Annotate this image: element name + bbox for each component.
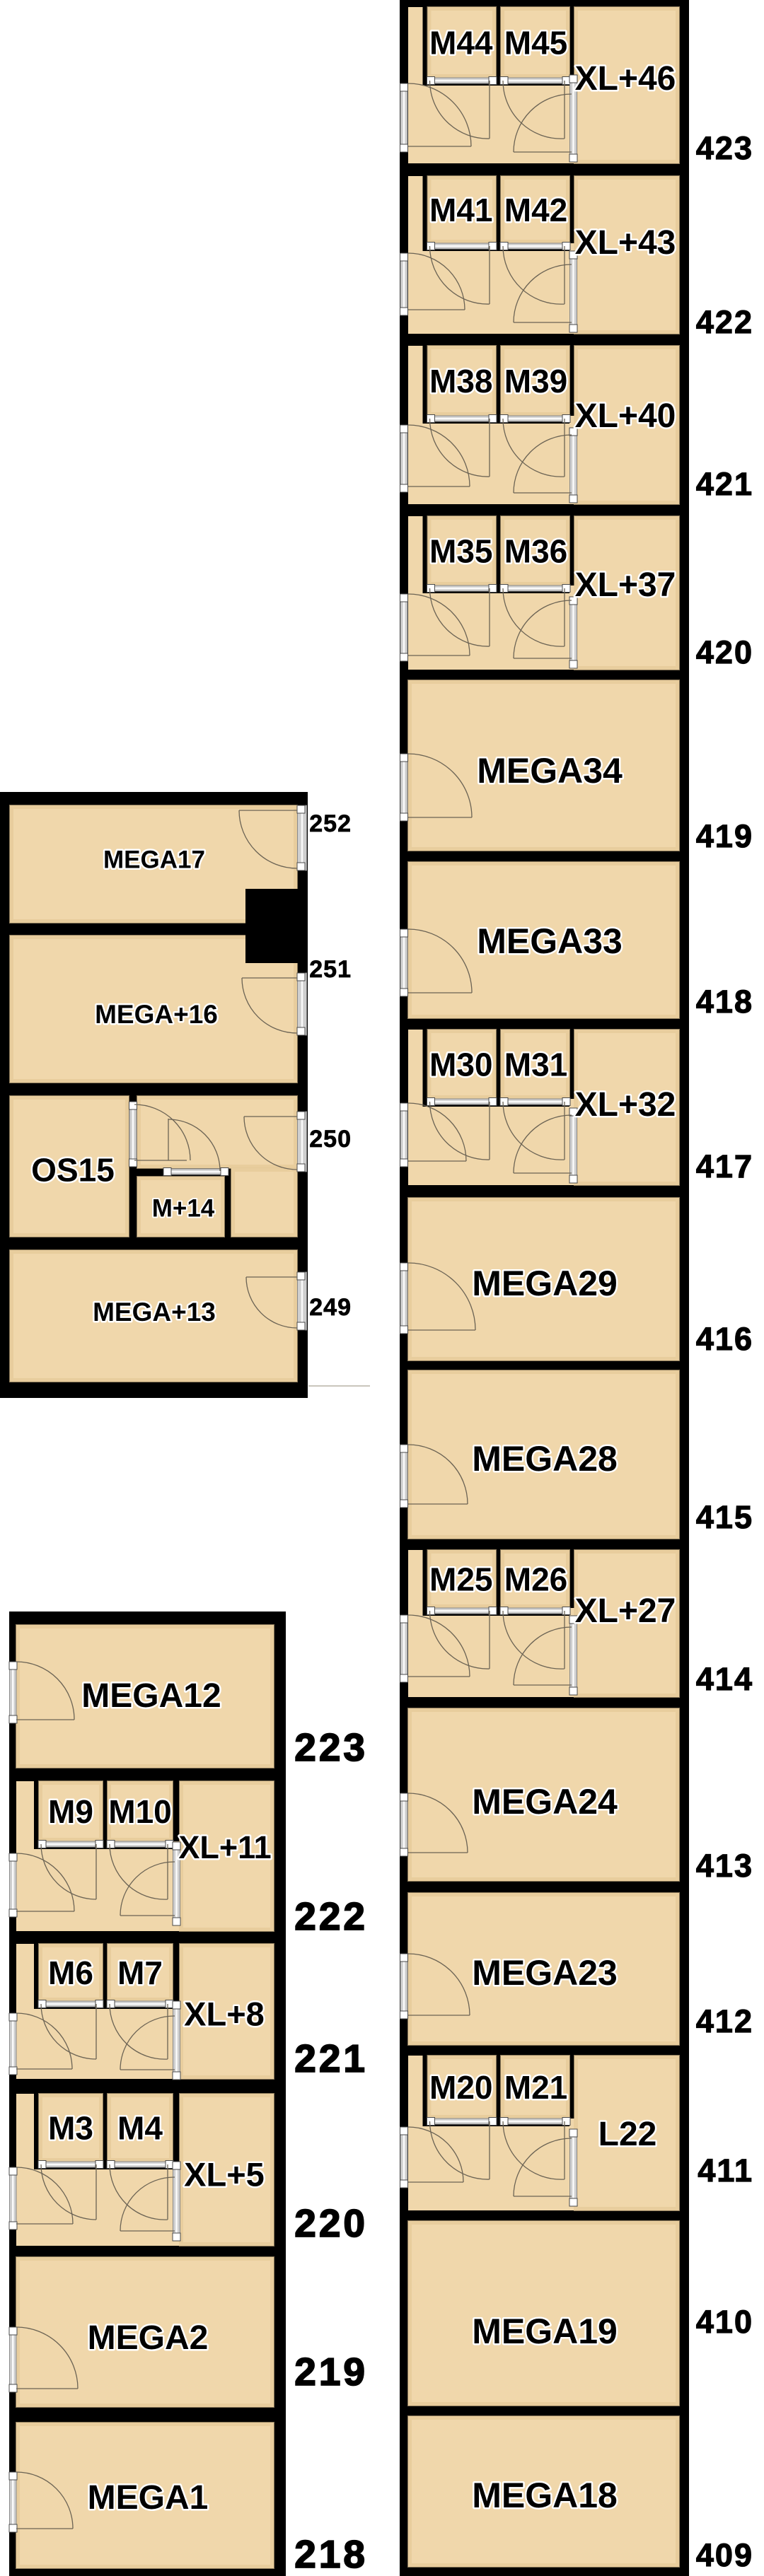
svg-text:415: 415 <box>696 1499 753 1535</box>
svg-text:M25: M25 <box>429 1561 492 1597</box>
svg-text:MEGA33: MEGA33 <box>477 921 623 961</box>
svg-text:M36: M36 <box>504 532 567 569</box>
svg-text:218: 218 <box>294 2532 368 2576</box>
svg-text:221: 221 <box>294 2036 368 2080</box>
svg-text:420: 420 <box>696 634 753 670</box>
svg-text:409: 409 <box>696 2537 753 2573</box>
svg-text:MEGA34: MEGA34 <box>477 751 623 791</box>
svg-text:MEGA12: MEGA12 <box>81 1677 221 1715</box>
svg-text:MEGA23: MEGA23 <box>472 1953 618 1993</box>
svg-text:M21: M21 <box>504 2069 567 2106</box>
svg-text:XL+32: XL+32 <box>575 1086 676 1124</box>
svg-text:252: 252 <box>309 810 352 837</box>
svg-text:MEGA1: MEGA1 <box>88 2479 209 2517</box>
svg-text:M35: M35 <box>429 532 492 569</box>
svg-text:M30: M30 <box>429 1046 492 1083</box>
svg-text:XL+46: XL+46 <box>575 60 676 98</box>
svg-text:MEGA17: MEGA17 <box>103 846 205 873</box>
svg-text:M39: M39 <box>504 363 567 400</box>
svg-text:MEGA24: MEGA24 <box>472 1782 618 1822</box>
svg-text:XL+11: XL+11 <box>178 1829 271 1865</box>
svg-text:M26: M26 <box>504 1561 567 1597</box>
svg-text:XL+40: XL+40 <box>575 397 676 435</box>
svg-text:219: 219 <box>294 2350 368 2394</box>
svg-text:M+14: M+14 <box>152 1194 215 1222</box>
svg-text:MEGA18: MEGA18 <box>472 2476 618 2515</box>
svg-text:413: 413 <box>696 1848 753 1884</box>
svg-text:M7: M7 <box>117 1954 163 1991</box>
svg-text:MEGA19: MEGA19 <box>472 2312 618 2351</box>
svg-text:XL+5: XL+5 <box>184 2156 265 2193</box>
svg-text:412: 412 <box>696 2003 753 2039</box>
svg-text:XL+8: XL+8 <box>184 1995 265 2033</box>
svg-text:250: 250 <box>309 1126 352 1153</box>
svg-text:249: 249 <box>309 1294 352 1321</box>
svg-text:XL+27: XL+27 <box>575 1592 676 1630</box>
svg-text:L22: L22 <box>598 2116 657 2153</box>
svg-text:421: 421 <box>696 466 753 502</box>
svg-text:M42: M42 <box>504 192 567 228</box>
svg-text:418: 418 <box>696 984 753 1020</box>
svg-text:423: 423 <box>696 130 753 166</box>
svg-text:220: 220 <box>294 2201 368 2245</box>
svg-text:417: 417 <box>696 1148 753 1184</box>
svg-text:411: 411 <box>698 2152 753 2189</box>
svg-text:MEGA+13: MEGA+13 <box>93 1298 216 1327</box>
svg-text:222: 222 <box>294 1894 368 1938</box>
svg-text:M38: M38 <box>429 363 492 400</box>
svg-text:MEGA29: MEGA29 <box>472 1264 618 1303</box>
svg-text:M31: M31 <box>504 1046 567 1083</box>
svg-text:MEGA2: MEGA2 <box>88 2319 209 2357</box>
svg-text:M41: M41 <box>429 192 492 228</box>
svg-text:XL+37: XL+37 <box>575 566 676 604</box>
svg-text:M45: M45 <box>504 24 567 61</box>
svg-text:M3: M3 <box>48 2109 93 2146</box>
svg-text:414: 414 <box>696 1661 753 1697</box>
svg-text:XL+43: XL+43 <box>575 224 676 262</box>
svg-text:416: 416 <box>696 1321 753 1357</box>
svg-text:M20: M20 <box>429 2069 492 2106</box>
svg-text:M6: M6 <box>48 1954 93 1991</box>
svg-text:M44: M44 <box>429 24 493 61</box>
svg-text:M9: M9 <box>48 1793 93 1830</box>
svg-text:M10: M10 <box>108 1793 171 1830</box>
svg-text:251: 251 <box>309 956 352 983</box>
svg-text:OS15: OS15 <box>31 1151 115 1188</box>
svg-text:MEGA+16: MEGA+16 <box>95 1000 218 1029</box>
svg-text:410: 410 <box>696 2304 753 2340</box>
svg-text:M4: M4 <box>117 2109 163 2146</box>
svg-text:223: 223 <box>294 1725 368 1769</box>
svg-text:422: 422 <box>696 304 753 340</box>
svg-text:MEGA28: MEGA28 <box>472 1439 618 1479</box>
svg-text:419: 419 <box>696 818 753 854</box>
